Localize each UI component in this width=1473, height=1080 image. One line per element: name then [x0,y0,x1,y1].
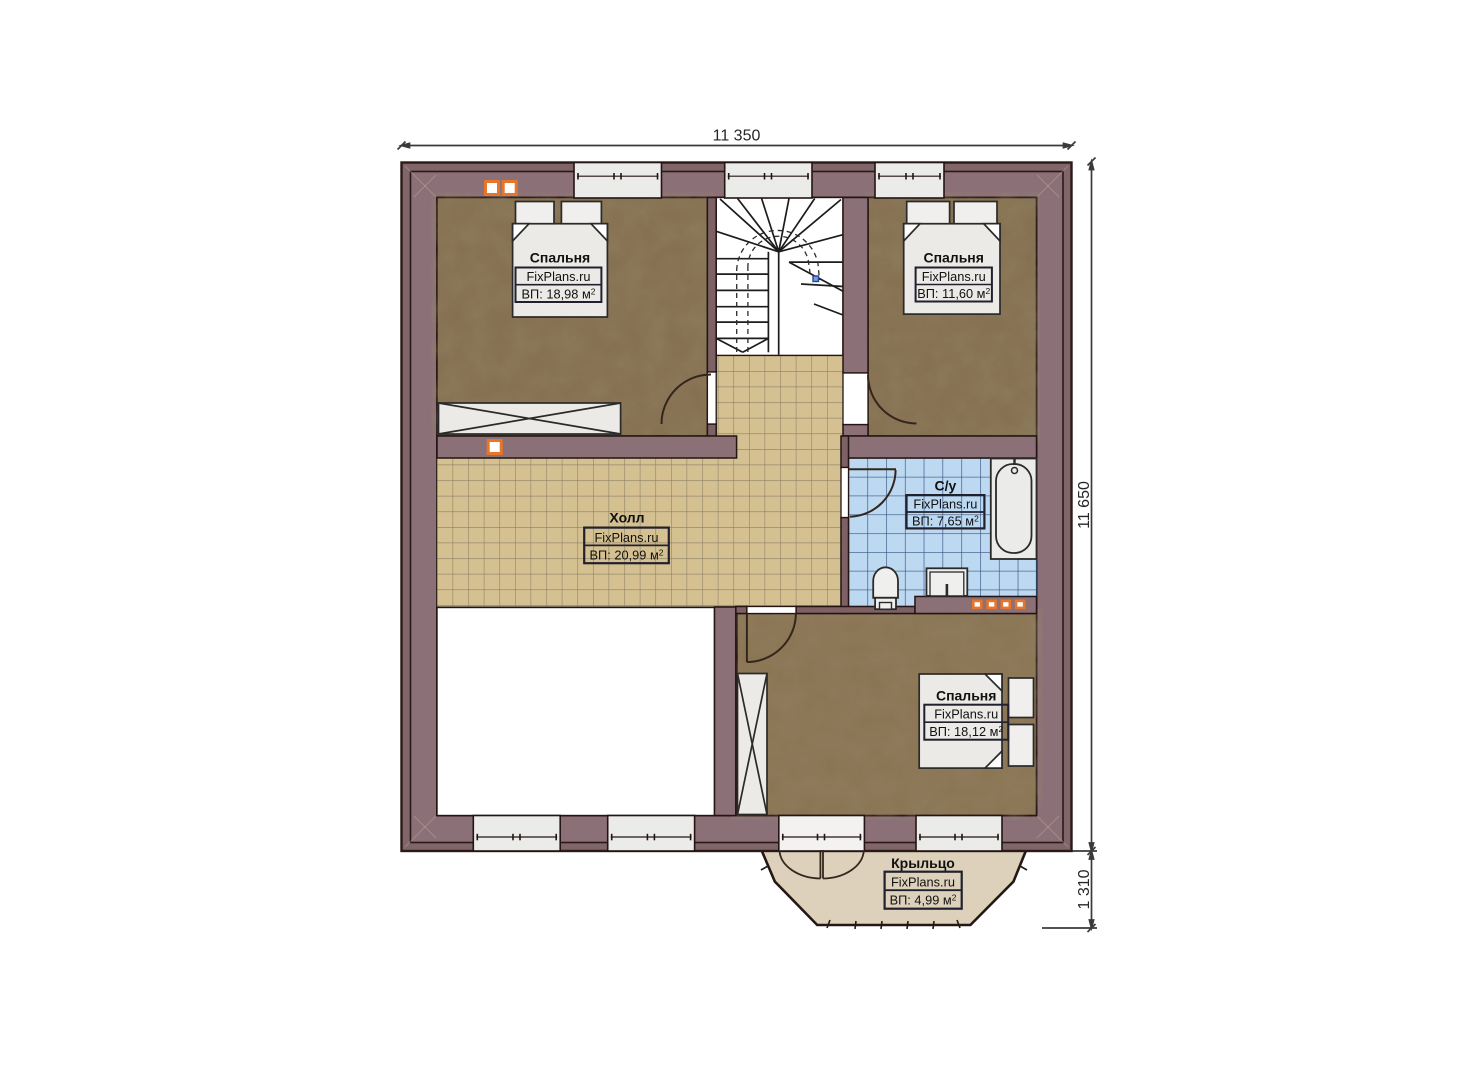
svg-text:FixPlans.ru: FixPlans.ru [891,875,955,890]
svg-text:ВП: 4,99 м2: ВП: 4,99 м2 [890,893,957,908]
svg-text:Холл: Холл [609,510,644,526]
svg-text:Спальня: Спальня [923,250,983,266]
svg-text:FixPlans.ru: FixPlans.ru [526,269,590,284]
svg-text:ВП: 20,99 м2: ВП: 20,99 м2 [590,547,664,562]
svg-text:Крыльцо: Крыльцо [891,855,955,871]
svg-text:FixPlans.ru: FixPlans.ru [934,707,998,722]
svg-text:FixPlans.ru: FixPlans.ru [913,496,977,511]
svg-text:FixPlans.ru: FixPlans.ru [922,269,986,284]
svg-text:1 310: 1 310 [1076,869,1093,909]
svg-text:С/у: С/у [935,478,957,494]
svg-text:Спальня: Спальня [530,250,590,266]
svg-text:FixPlans.ru: FixPlans.ru [594,530,658,545]
svg-text:ВП: 18,12 м2: ВП: 18,12 м2 [929,724,1003,739]
svg-text:ВП: 11,60 м2: ВП: 11,60 м2 [917,286,990,301]
svg-text:Спальня: Спальня [936,688,996,704]
svg-text:11 650: 11 650 [1076,481,1093,529]
svg-text:ВП: 18,98 м2: ВП: 18,98 м2 [522,286,596,301]
svg-text:11 350: 11 350 [713,128,761,145]
svg-text:ВП: 7,65 м2: ВП: 7,65 м2 [912,514,979,529]
